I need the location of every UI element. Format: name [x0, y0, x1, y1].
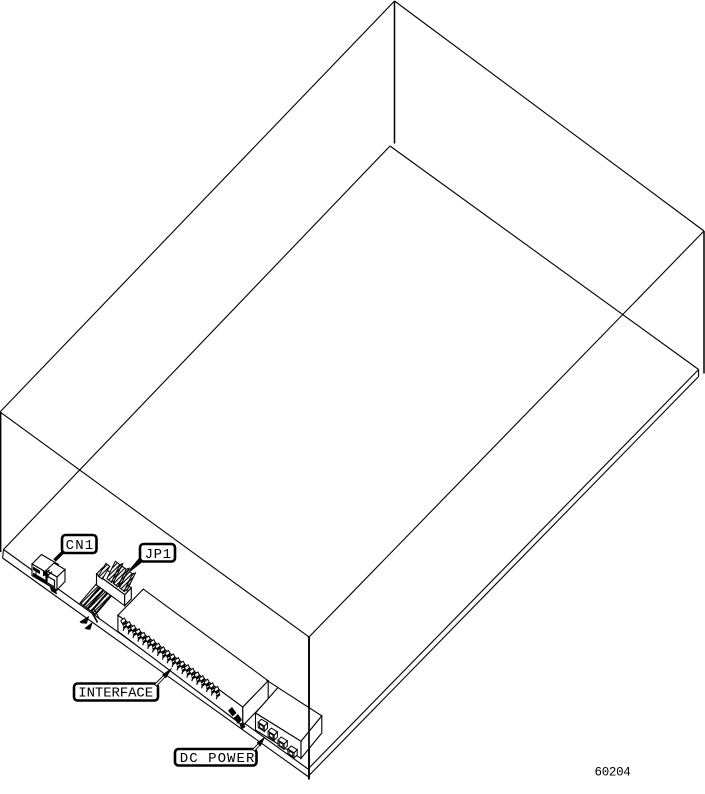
- svg-text:DC POWER: DC POWER: [180, 751, 256, 767]
- svg-text:JP1: JP1: [145, 547, 172, 563]
- svg-text:INTERFACE: INTERFACE: [78, 685, 153, 701]
- svg-text:60204: 60204: [595, 766, 631, 780]
- svg-text:CN1: CN1: [66, 538, 95, 554]
